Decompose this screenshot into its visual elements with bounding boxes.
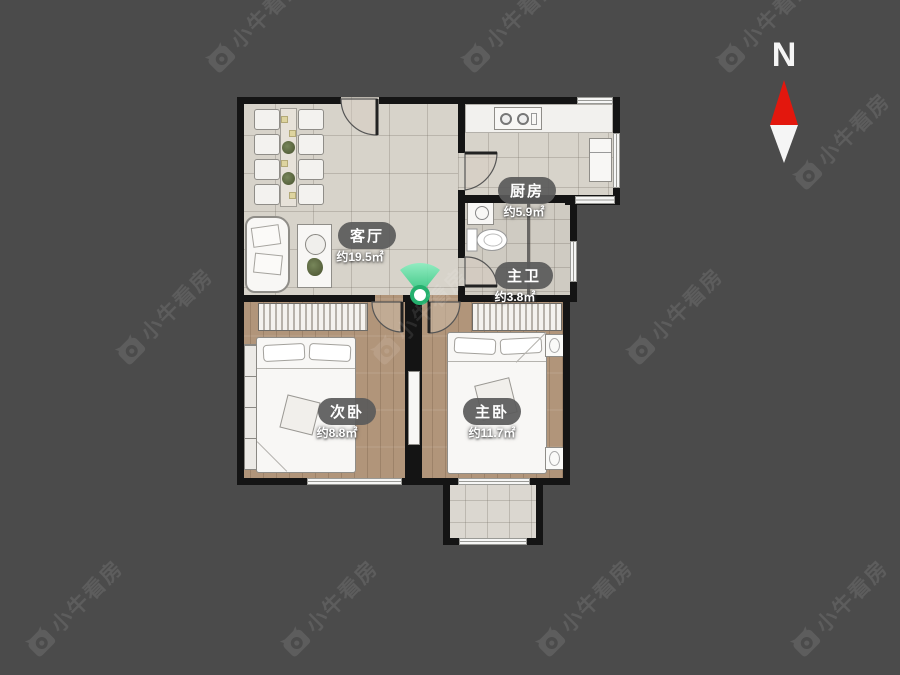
tv-cabinet <box>297 224 332 288</box>
plant-icon <box>282 141 295 154</box>
room-area-bathroom: 约3.8㎡ <box>495 288 536 305</box>
dining-chair <box>254 109 280 130</box>
wardrobe <box>258 303 368 331</box>
cow-camera-icon <box>278 624 313 659</box>
cow-camera-icon <box>203 40 238 75</box>
wall <box>237 302 244 485</box>
stove <box>494 107 542 130</box>
dining-chair <box>298 184 324 205</box>
floorplan-screenshot: 客厅 约19.5㎡ 厨房 约5.9㎡ 主卫 约3.8㎡ 次卧 约8.8㎡ 主卧 … <box>0 0 900 675</box>
window <box>575 196 615 204</box>
dining-chair <box>298 134 324 155</box>
place-setting <box>281 116 288 123</box>
nightstand <box>545 334 564 357</box>
watermark-text: 小牛看房 <box>133 261 219 347</box>
watermark-text: 小牛看房 <box>643 261 729 347</box>
window <box>459 538 527 545</box>
side-shelf <box>244 344 257 470</box>
room-area-master-bedroom: 约11.7㎡ <box>469 424 516 441</box>
sofa-cushion <box>251 224 282 248</box>
watermark-text: 小牛看房 <box>553 553 639 639</box>
sofa <box>245 216 290 293</box>
watermark-text: 小牛看房 <box>810 86 896 172</box>
balcony-slider-window <box>458 478 530 485</box>
compass: N <box>758 36 818 176</box>
watermark-text: 小牛看房 <box>223 0 309 55</box>
window <box>613 133 620 188</box>
sofa-cushion <box>253 253 283 276</box>
room-label-living: 客厅 <box>338 222 396 249</box>
room-area-living: 约19.5㎡ <box>336 248 383 265</box>
watermark: 小牛看房 <box>786 553 895 662</box>
cow-camera-icon <box>23 624 58 659</box>
watermark: 小牛看房 <box>111 261 220 370</box>
dining-chair <box>254 159 280 180</box>
dining-chair <box>254 184 280 205</box>
place-setting <box>289 192 296 199</box>
wall <box>458 97 465 153</box>
room-area-kitchen: 约5.9㎡ <box>504 203 545 220</box>
place-setting <box>289 130 296 137</box>
watermark: 小牛看房 <box>621 261 730 370</box>
window <box>577 97 613 104</box>
dining-chair <box>298 159 324 180</box>
watermark-text: 小牛看房 <box>478 0 564 55</box>
watermark: 小牛看房 <box>201 0 310 77</box>
room-area-second-bedroom: 约8.8㎡ <box>317 424 358 441</box>
watermark-text: 小牛看房 <box>808 553 894 639</box>
watermark: 小牛看房 <box>21 553 130 662</box>
watermark: 小牛看房 <box>456 0 565 77</box>
compass-north-label: N <box>758 36 810 75</box>
window <box>570 241 577 282</box>
room-label-bathroom: 主卫 <box>495 262 553 289</box>
cow-camera-icon <box>713 40 748 75</box>
dining-chair <box>254 134 280 155</box>
hall-door-panel <box>408 371 420 445</box>
watermark: 小牛看房 <box>531 553 640 662</box>
cow-camera-icon <box>623 332 658 367</box>
wall <box>563 302 570 485</box>
burner-icon <box>517 113 529 125</box>
cow-camera-icon <box>533 624 568 659</box>
viewpoint-dot-icon <box>412 287 428 303</box>
wardrobe <box>472 303 562 331</box>
place-setting <box>281 160 288 167</box>
cow-camera-icon <box>458 40 493 75</box>
wall <box>237 295 375 302</box>
wall <box>443 478 450 545</box>
nightstand <box>545 447 564 470</box>
window <box>307 478 402 485</box>
wall <box>237 97 341 104</box>
watermark-text: 小牛看房 <box>298 553 384 639</box>
fridge <box>589 138 612 182</box>
watermark: 小牛看房 <box>276 553 385 662</box>
plant-icon <box>282 172 295 185</box>
cow-camera-icon <box>788 624 823 659</box>
wall <box>237 97 244 302</box>
room-label-master-bedroom: 主卧 <box>463 398 521 425</box>
cow-camera-icon <box>113 332 148 367</box>
room-label-kitchen: 厨房 <box>498 177 556 204</box>
wall <box>536 478 543 545</box>
burner-icon <box>500 113 512 125</box>
watermark-text: 小牛看房 <box>43 553 129 639</box>
balcony-floor <box>443 478 543 545</box>
compass-needle-icon <box>762 75 806 165</box>
plant-icon <box>307 258 323 276</box>
dining-chair <box>298 109 324 130</box>
room-label-second-bedroom: 次卧 <box>318 398 376 425</box>
